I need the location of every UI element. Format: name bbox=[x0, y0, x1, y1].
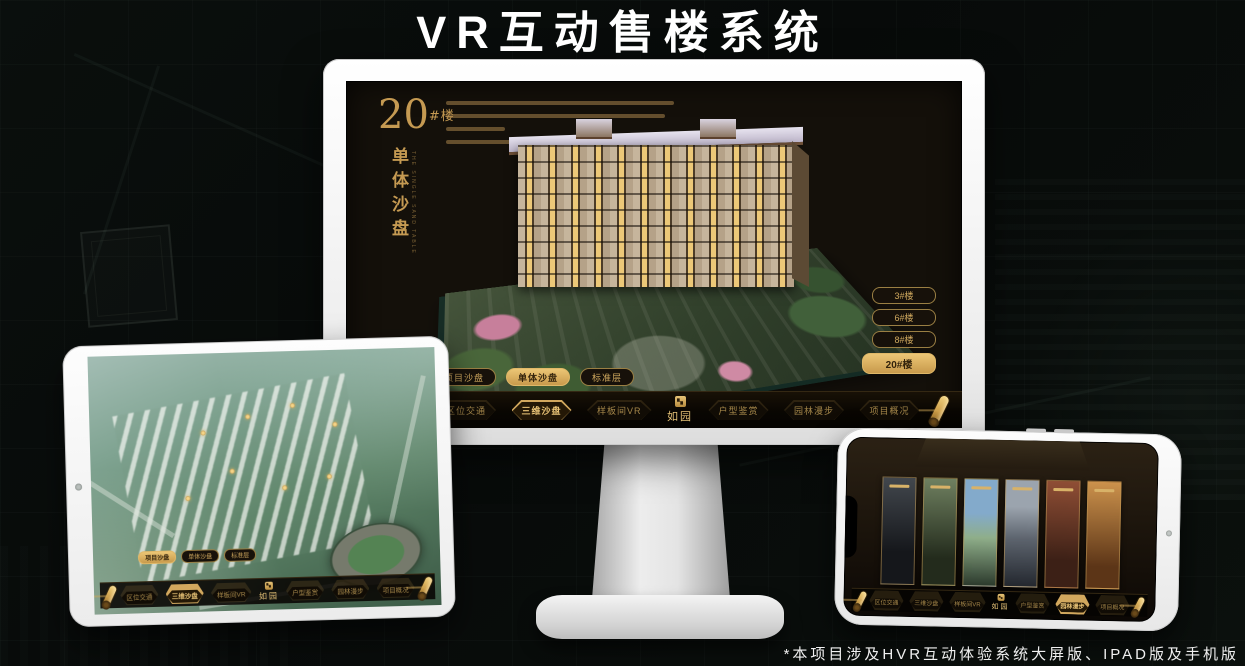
scene-card[interactable] bbox=[962, 478, 998, 587]
phone-navbar: 区位交通 三维沙盘 样板间VR 如园 户型鉴赏 园林漫步 项目概况 bbox=[851, 588, 1147, 617]
background-plaque bbox=[80, 224, 178, 327]
blurred-text-line bbox=[446, 101, 674, 105]
seal-icon bbox=[997, 594, 1004, 601]
nav-item-model-room-vr[interactable]: 样板间VR bbox=[211, 582, 252, 603]
tab-single-sandbox[interactable]: 单体沙盘 bbox=[181, 549, 219, 563]
tablet-screen: 项目沙盘 单体沙盘 标准层 区位交通 三维沙盘 样板间VR 如园 户型鉴赏 园林… bbox=[87, 347, 441, 615]
phone-volume-button bbox=[1026, 428, 1046, 432]
nav-item-3d-sandbox-active[interactable]: 三维沙盘 bbox=[165, 583, 204, 604]
nav-item-floorplan-view[interactable]: 户型鉴赏 bbox=[708, 400, 768, 420]
building-tower-cap bbox=[576, 119, 612, 139]
page-title: VR互动售楼系统 bbox=[0, 0, 1245, 56]
scroll-icon[interactable] bbox=[102, 584, 117, 607]
tab-project-sandbox-active[interactable]: 项目沙盘 bbox=[138, 550, 176, 564]
tablet-device: 项目沙盘 单体沙盘 标准层 区位交通 三维沙盘 样板间VR 如园 户型鉴赏 园林… bbox=[62, 336, 456, 628]
brand-logo: 如园 bbox=[991, 594, 1009, 612]
monitor-stand-neck bbox=[592, 443, 730, 599]
tablet-camera-icon bbox=[75, 483, 82, 490]
scroll-icon[interactable] bbox=[1131, 596, 1145, 616]
nav-item-model-room-vr[interactable]: 样板间VR bbox=[587, 400, 652, 420]
building-badge[interactable] bbox=[185, 496, 190, 501]
scene-card[interactable] bbox=[1044, 480, 1080, 589]
brand-logo-text: 如园 bbox=[667, 408, 693, 424]
phone-camera-icon bbox=[1166, 530, 1172, 536]
building-tower-cap bbox=[700, 119, 736, 139]
building-model-3d[interactable] bbox=[518, 145, 794, 287]
blurred-text-line bbox=[446, 114, 665, 118]
scroll-icon[interactable] bbox=[929, 395, 950, 426]
building-badge[interactable] bbox=[229, 469, 234, 474]
building-facade bbox=[518, 145, 794, 287]
phone-volume-button bbox=[1054, 429, 1074, 433]
scroll-icon[interactable] bbox=[853, 590, 867, 610]
nav-item-project-overview[interactable]: 项目概况 bbox=[859, 400, 919, 420]
building-badge[interactable] bbox=[327, 474, 332, 479]
brand-logo-text: 如园 bbox=[259, 590, 279, 602]
scene-card[interactable] bbox=[921, 478, 957, 587]
floor-button-8[interactable]: 8#楼 bbox=[872, 331, 936, 348]
tab-single-sandbox-active[interactable]: 单体沙盘 bbox=[506, 368, 570, 386]
nav-item-model-room-vr[interactable]: 样板间VR bbox=[949, 592, 986, 613]
nav-item-garden-walk[interactable]: 园林漫步 bbox=[784, 400, 844, 420]
scene-card[interactable] bbox=[1003, 479, 1039, 588]
sandbox-tab-group: 项目沙盘 单体沙盘 标准层 bbox=[432, 368, 634, 386]
floor-button-6[interactable]: 6#楼 bbox=[872, 309, 936, 326]
phone-device: 区位交通 三维沙盘 样板间VR 如园 户型鉴赏 园林漫步 项目概况 bbox=[834, 427, 1182, 631]
nav-item-garden-walk[interactable]: 园林漫步 bbox=[331, 578, 370, 599]
seal-icon bbox=[265, 581, 273, 589]
heading-subtitle: 单体沙盘 bbox=[386, 147, 411, 243]
tab-standard-floor[interactable]: 标准层 bbox=[580, 368, 634, 386]
nav-item-garden-walk-active[interactable]: 园林漫步 bbox=[1055, 594, 1089, 615]
blurred-text-line bbox=[446, 127, 505, 131]
brand-logo-text: 如园 bbox=[991, 602, 1009, 612]
phone-screen: 区位交通 三维沙盘 样板间VR 如园 户型鉴赏 园林漫步 项目概况 bbox=[843, 437, 1159, 622]
scene-card[interactable] bbox=[880, 477, 916, 586]
nav-item-3d-sandbox-active[interactable]: 三维沙盘 bbox=[512, 400, 572, 420]
phone-notch bbox=[844, 495, 857, 557]
floor-button-3[interactable]: 3#楼 bbox=[872, 287, 936, 304]
scene-card-label bbox=[931, 486, 950, 489]
brand-logo: 如园 bbox=[259, 581, 280, 602]
courtyard-beam bbox=[915, 438, 1090, 470]
monitor-stand-base bbox=[536, 595, 784, 639]
nav-item-location-traffic[interactable]: 区位交通 bbox=[120, 584, 159, 605]
scene-card-label bbox=[1095, 489, 1114, 492]
scene-card-strip bbox=[880, 477, 1121, 590]
brand-logo: 如园 bbox=[667, 396, 693, 424]
scroll-icon[interactable] bbox=[418, 575, 433, 598]
footnote-caption: *本项目涉及HVR互动体验系统大屏版、IPAD版及手机版 bbox=[784, 643, 1239, 664]
scene-card[interactable] bbox=[1085, 481, 1121, 590]
heading-subtitle-en: THE SINGLE SAND TABLE bbox=[410, 151, 416, 255]
heading-number: 20 bbox=[378, 92, 429, 138]
building-badge[interactable] bbox=[290, 403, 295, 408]
floor-button-group: 3#楼 6#楼 8#楼 20#楼 bbox=[862, 287, 936, 374]
seal-icon bbox=[675, 396, 686, 407]
nav-item-floorplan-view[interactable]: 户型鉴赏 bbox=[1015, 593, 1049, 614]
scene-card-label bbox=[1054, 488, 1073, 491]
floor-button-20-active[interactable]: 20#楼 bbox=[862, 353, 936, 374]
nav-item-location-traffic[interactable]: 区位交通 bbox=[869, 590, 903, 611]
nav-item-3d-sandbox[interactable]: 三维沙盘 bbox=[909, 591, 943, 612]
scene-card-label bbox=[972, 487, 991, 490]
scene-card-label bbox=[890, 485, 909, 488]
nav-item-floorplan-view[interactable]: 户型鉴赏 bbox=[286, 580, 325, 601]
tab-standard-floor[interactable]: 标准层 bbox=[224, 548, 256, 562]
building-side-face bbox=[792, 141, 809, 287]
scene-card-label bbox=[1013, 487, 1032, 490]
